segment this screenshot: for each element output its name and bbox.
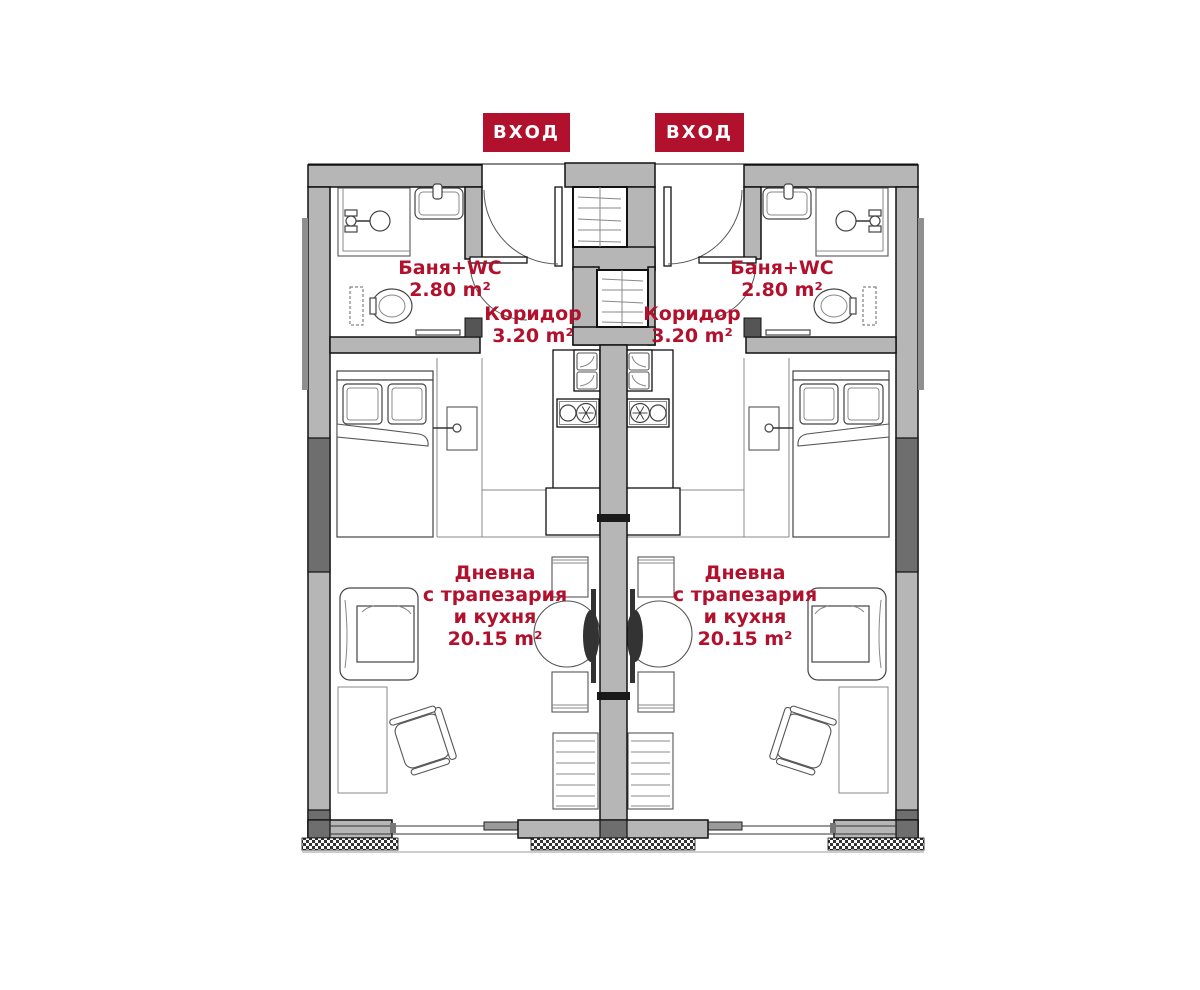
wardrobe xyxy=(433,407,477,450)
armchair xyxy=(340,588,418,680)
top-wall xyxy=(308,165,482,187)
living-area: 20.15 m² xyxy=(417,628,573,650)
party-wall xyxy=(600,345,627,823)
entrance-door xyxy=(484,187,562,266)
insulation-hatch-center xyxy=(531,838,695,850)
floor-plan-canvas: ВХОД ВХОД Баня+WC 2.80 m² Коридор 3.20 m… xyxy=(0,0,1200,990)
entrance-badge-left: ВХОД xyxy=(483,113,570,152)
kitchen-cabinet xyxy=(546,488,600,535)
living-label-left: Дневна с трапезария и кухня 20.15 m² xyxy=(417,562,573,650)
insulation-hatch xyxy=(302,838,398,850)
living-area: 20.15 m² xyxy=(667,628,823,650)
bed xyxy=(337,371,433,537)
bathroom-bottom-wall xyxy=(330,337,480,353)
dining-chair-bottom xyxy=(552,672,588,712)
bath-area: 2.80 m² xyxy=(375,279,525,301)
corridor-label-left: Коридор 3.20 m² xyxy=(483,303,583,347)
side-wall-dark-segment xyxy=(308,438,330,572)
radiator xyxy=(553,733,598,809)
bathroom-wall xyxy=(465,187,482,259)
door-jamb-stub xyxy=(465,318,482,337)
corridor-name: Коридор xyxy=(483,303,583,325)
wall-joint xyxy=(597,692,630,700)
cooktop xyxy=(557,399,599,427)
living-name-line3: и кухня xyxy=(667,606,823,628)
corridor-area: 3.20 m² xyxy=(642,325,742,347)
desk xyxy=(338,687,387,793)
living-name-line1: Дневна xyxy=(667,562,823,584)
installation-shaft-top xyxy=(573,187,627,247)
corridor-label-right: Коридор 3.20 m² xyxy=(642,303,742,347)
wall-joint xyxy=(597,514,630,522)
bath-label-left: Баня+WC 2.80 m² xyxy=(375,257,525,301)
bath-area: 2.80 m² xyxy=(707,279,857,301)
bath-name: Баня+WC xyxy=(707,257,857,279)
living-name-line1: Дневна xyxy=(417,562,573,584)
side-wall-cladding xyxy=(302,218,308,390)
bottom-pier-dark xyxy=(308,820,330,838)
corridor-area: 3.20 m² xyxy=(483,325,583,347)
wall-tv xyxy=(583,589,599,683)
bath-label-right: Баня+WC 2.80 m² xyxy=(707,257,857,301)
small-chair xyxy=(389,704,458,777)
center-pier-dark xyxy=(600,820,627,838)
shower xyxy=(338,188,410,256)
window-end-block xyxy=(390,823,396,833)
bath-name: Баня+WC xyxy=(375,257,525,279)
living-name-line3: и кухня xyxy=(417,606,573,628)
living-label-right: Дневна с трапезария и кухня 20.15 m² xyxy=(667,562,823,650)
living-name-line2: с трапезария xyxy=(417,584,573,606)
entrance-badge-right: ВХОД xyxy=(655,113,744,152)
bathroom-sink xyxy=(415,184,463,219)
installation-shaft-bottom xyxy=(597,270,648,327)
floor-plan-drawing xyxy=(0,0,1200,990)
living-name-line2: с трапезария xyxy=(667,584,823,606)
towel-rail xyxy=(416,330,460,335)
corridor-name: Коридор xyxy=(642,303,742,325)
